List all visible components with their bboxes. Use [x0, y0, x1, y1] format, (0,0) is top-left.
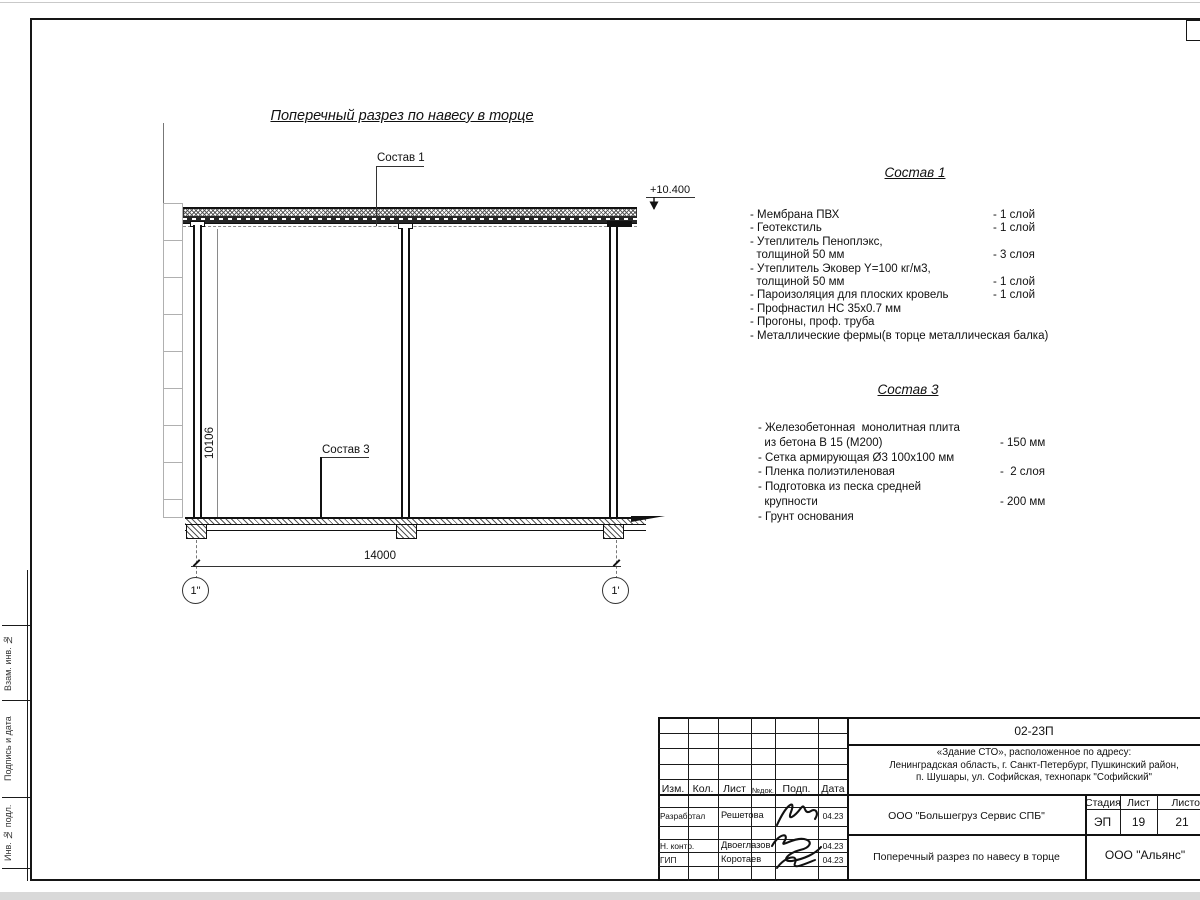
tb-address-line1: «Здание СТО», расположенное по адресу: [848, 747, 1200, 760]
footing-left [186, 524, 207, 539]
tb-date-developer: 04.23 [818, 811, 848, 821]
tb-row-line [658, 779, 848, 780]
tb-doc-title: Поперечный разрез по навесу в торце [848, 851, 1085, 863]
roof-assembly [183, 207, 637, 224]
hdim-line [191, 566, 621, 567]
tb-row-line [848, 744, 1200, 746]
roof-insulation-layer [183, 209, 637, 216]
tb-row-line [658, 733, 848, 734]
tb-name-ncontrol: Двоеглазов [721, 840, 770, 850]
reference-line [163, 123, 164, 205]
composition1-list: - Мембрана ПВХ- 1 слой - Геотекстиль- 1 … [750, 209, 1050, 343]
column-right [609, 227, 618, 526]
list-item: - Металлические фермы(в торце металличес… [750, 330, 1050, 343]
footing-right [603, 524, 624, 539]
list-item: - Пленка полиэтиленовая- 2 слоя [758, 465, 1060, 480]
list-item: - Пароизоляция для плоских кровель- 1 сл… [750, 289, 1050, 302]
page-edge-top [0, 2, 1200, 3]
leader3-underline [320, 457, 369, 458]
tb-row-line [1085, 809, 1200, 810]
tb-stage-value: ЭП [1085, 815, 1120, 829]
side-cell-divider [2, 625, 30, 626]
list-item: толщиной 50 мм- 3 слоя [750, 249, 1050, 262]
column-middle [401, 228, 410, 526]
tb-sheet-label: Лист [1120, 797, 1157, 809]
tb-col-list: Лист [718, 783, 751, 795]
copy-stamp-box [1186, 20, 1200, 41]
leader3-line [320, 457, 322, 518]
composition1-heading: Состав 1 [765, 165, 1065, 180]
leader1-label: Состав 1 [377, 152, 425, 164]
tb-role-ncontrol: Н. контр. [660, 841, 694, 851]
list-item: - Профнастил НС 35х0.7 мм [750, 303, 1050, 316]
tb-sheets-label: Листов [1157, 797, 1200, 809]
tb-role-developer: Разработал [660, 811, 705, 821]
list-item: - Мембрана ПВХ- 1 слой [750, 209, 1050, 222]
list-item: из бетона В 15 (М200)- 150 мм [758, 436, 1060, 451]
tb-stage-label: Стадия [1085, 797, 1120, 809]
list-item: - Утеплитель Пеноплэкс, [750, 236, 1050, 249]
side-cell-divider [2, 700, 30, 701]
signature-developer [772, 797, 822, 833]
tb-col-ndok: №док. [751, 786, 775, 795]
list-item: толщиной 50 мм- 1 слой [750, 276, 1050, 289]
side-label-vzam: Взам. инв. № [3, 627, 13, 698]
side-cell-divider [2, 797, 30, 798]
tb-col-line [718, 717, 719, 881]
tb-col-kol: Кол. [688, 783, 718, 795]
column-left [193, 225, 202, 526]
hdim-value: 14000 [350, 550, 410, 562]
leader3-label: Состав 3 [322, 444, 370, 456]
signature-gip [769, 830, 825, 876]
list-item: - Подготовка из песка средней [758, 480, 1060, 495]
view-title: Поперечный разрез по навесу в торце [252, 108, 552, 124]
leader1-underline [376, 166, 424, 167]
roof-deck-dashes [183, 218, 637, 220]
slab-edge-wedge [631, 516, 665, 522]
list-item: - Грунт основания [758, 510, 1060, 525]
tb-col-data: Дата [818, 783, 848, 795]
roof-deck-layer [183, 216, 637, 223]
tb-row-line [848, 834, 1200, 836]
adjacent-wall-ladder [163, 203, 183, 518]
footing-middle [396, 524, 417, 539]
tb-role-gip: ГИП [660, 855, 676, 865]
list-item: - Геотекстиль- 1 слой [750, 222, 1050, 235]
tb-company: ООО "Большегруз Сервис СПБ" [848, 810, 1085, 822]
tb-address-line2: Ленинградская область, г. Санкт-Петербур… [848, 760, 1200, 773]
tb-col-podp: Подп. [775, 783, 818, 795]
vdim-line [217, 229, 218, 517]
list-item: - Сетка армирующая Ø3 100х100 мм [758, 451, 1060, 466]
list-item: крупности- 200 мм [758, 495, 1060, 510]
tb-col-line [688, 717, 689, 881]
elevation-arrow-icon [646, 197, 662, 211]
page-edge-bottom [0, 892, 1200, 900]
elevation-value: +10.400 [650, 184, 690, 196]
list-item: - Утеплитель Эковер Y=100 кг/м3, [750, 263, 1050, 276]
vdim-value: 10106 [204, 421, 216, 465]
drawing-sheet: Взам. инв. № Подпись и дата Инв. № подл.… [0, 0, 1200, 900]
tb-project-code: 02-23П [848, 724, 1200, 738]
side-label-podpis: Подпись и дата [3, 703, 13, 794]
tb-col-izm: Изм. [658, 783, 688, 795]
tb-sheets-value: 21 [1157, 815, 1200, 829]
list-item: - Прогоны, проф. труба [750, 316, 1050, 329]
tb-row-line [658, 748, 848, 749]
side-column-line [27, 570, 28, 881]
tb-name-gip: Коротаев [721, 854, 761, 864]
tb-object-address: «Здание СТО», расположенное по адресу: Л… [848, 747, 1200, 785]
tb-org: ООО "Альянс" [1085, 848, 1200, 862]
tb-address-line3: п. Шушары, ул. Софийская, технопарк "Соф… [848, 772, 1200, 785]
list-item: - Железобетонная монолитная плита [758, 421, 1060, 436]
axis-bubble-left: 1" [182, 577, 209, 604]
leader1-line [376, 166, 377, 226]
axis-bubble-right: 1' [602, 577, 629, 604]
side-cell-divider [2, 868, 30, 869]
side-label-inv: Инв. № подл. [3, 800, 13, 865]
tb-row-line [658, 764, 848, 765]
tb-name-developer: Решетова [721, 810, 764, 820]
composition3-list: - Железобетонная монолитная плита из бет… [758, 421, 1060, 525]
composition3-heading: Состав 3 [758, 382, 1058, 397]
tb-sheet-value: 19 [1120, 815, 1157, 829]
